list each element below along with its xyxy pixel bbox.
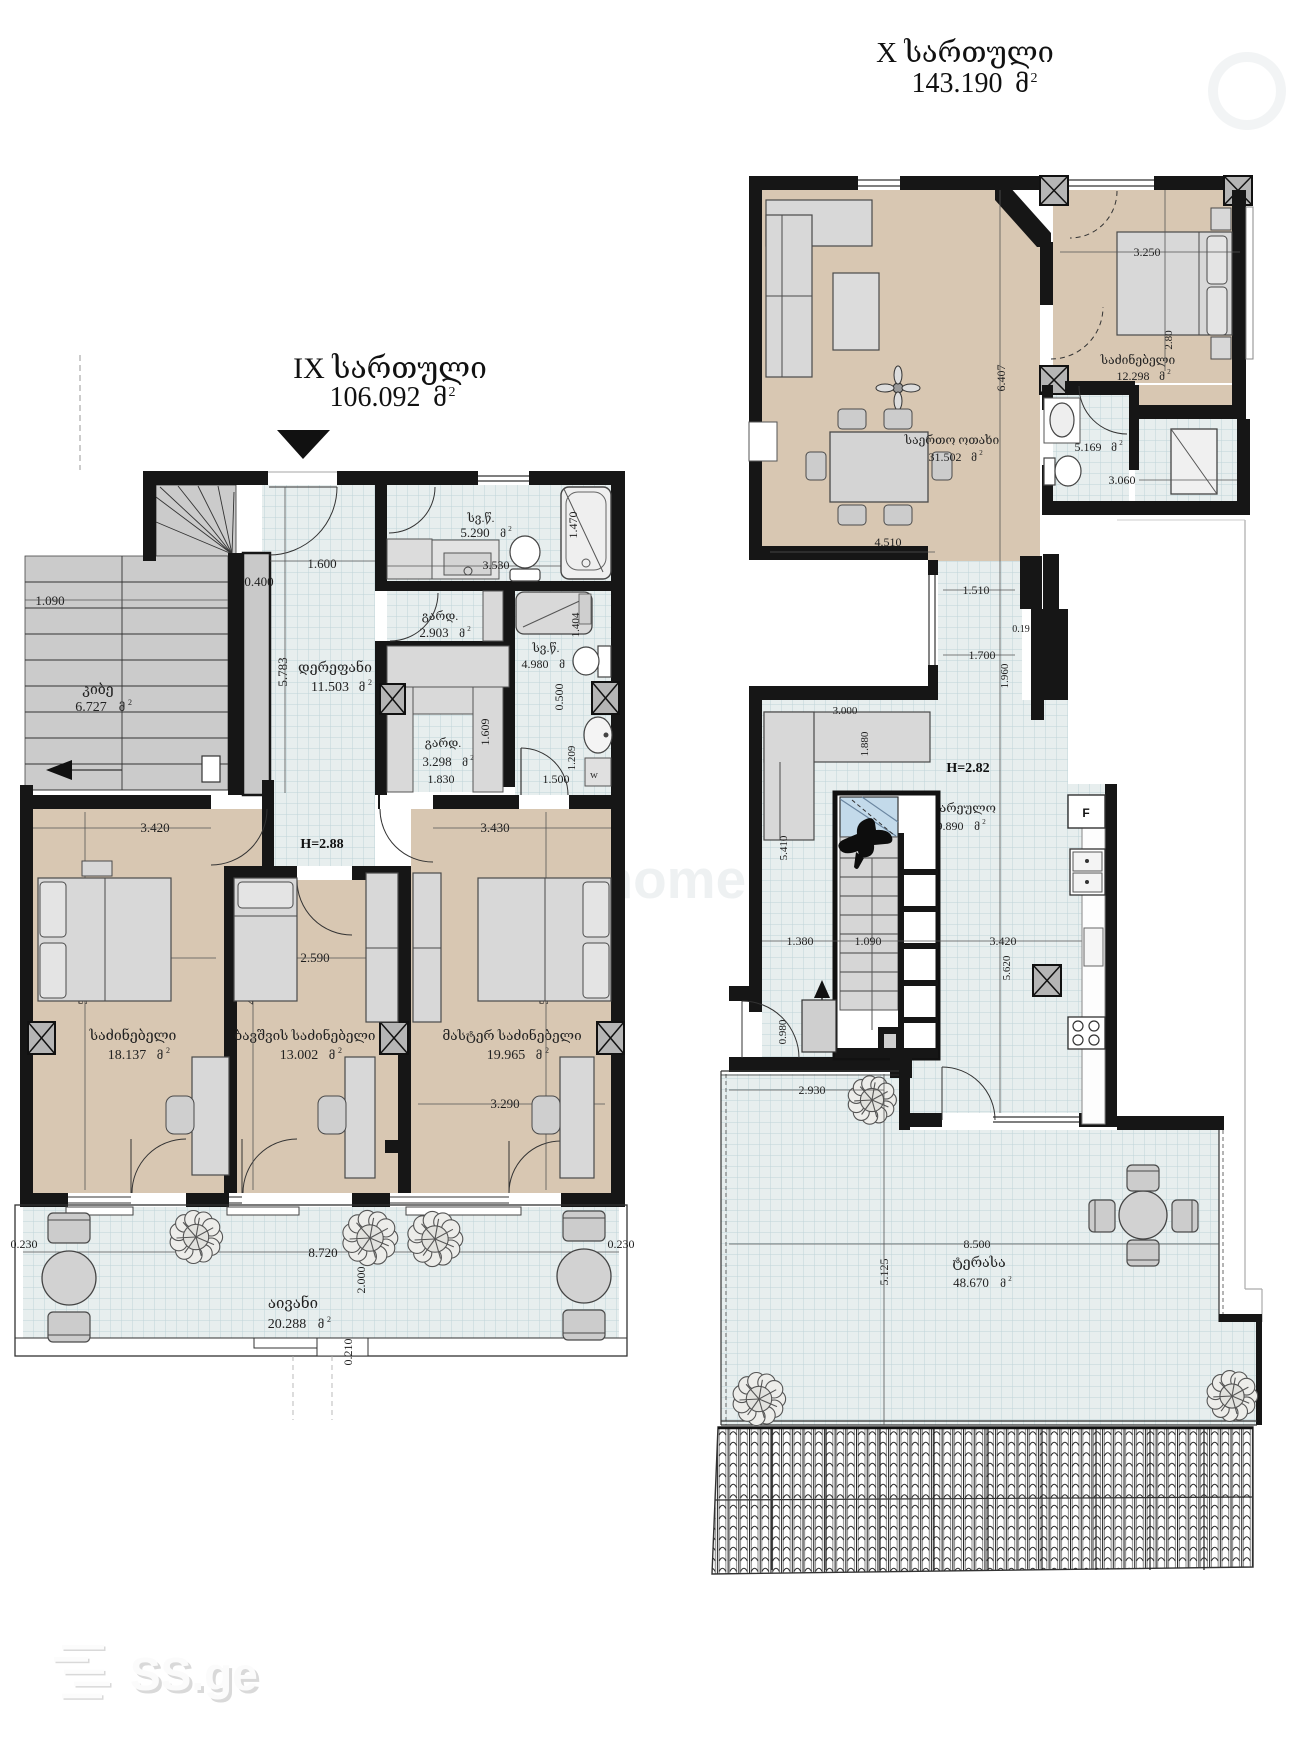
svg-text:1.960: 1.960: [999, 663, 1011, 688]
svg-text:2: 2: [979, 449, 983, 457]
svg-text:მასტერ საძინებელი: მასტერ საძინებელი: [442, 1028, 581, 1043]
svg-text:მ: მ: [462, 758, 468, 769]
svg-text:20.288: 20.288: [268, 1317, 307, 1332]
svg-text:48.670: 48.670: [953, 1275, 989, 1290]
svg-text:ბავშვის საძინებელი: ბავშვის საძინებელი: [235, 1028, 376, 1043]
svg-text:5.290: 5.290: [460, 525, 489, 540]
svg-text:საძინებელი: საძინებელი: [1100, 352, 1176, 367]
svg-text:მ: მ: [329, 1050, 335, 1062]
svg-text:2: 2: [1031, 71, 1038, 86]
svg-text:აივანი: აივანი: [268, 1294, 318, 1312]
svg-text:F: F: [1082, 806, 1089, 820]
svg-text:SS.ge: SS.ge: [130, 1648, 258, 1700]
svg-text:2: 2: [128, 698, 132, 707]
svg-text:0.980: 0.980: [777, 1019, 789, 1044]
svg-text:H=2.82: H=2.82: [946, 761, 989, 776]
svg-text:მ: მ: [157, 1050, 163, 1062]
svg-text:1.404: 1.404: [570, 612, 582, 637]
svg-text:H=2.88: H=2.88: [300, 837, 343, 852]
svg-text:2: 2: [1167, 368, 1171, 376]
svg-text:3.530: 3.530: [483, 558, 510, 572]
svg-text:1.609: 1.609: [478, 719, 492, 746]
svg-text:2: 2: [338, 1046, 342, 1055]
svg-text:5.783: 5.783: [275, 657, 290, 686]
svg-text:3.290: 3.290: [490, 1096, 519, 1111]
svg-text:18.137: 18.137: [108, 1048, 147, 1063]
svg-text:1.600: 1.600: [307, 556, 336, 571]
svg-text:2: 2: [166, 1046, 170, 1055]
svg-text:2: 2: [982, 818, 986, 826]
svg-text:მ: მ: [359, 682, 365, 694]
svg-text:მ: მ: [1111, 443, 1117, 454]
svg-text:მ: მ: [433, 386, 447, 412]
svg-text:მ: მ: [500, 529, 506, 540]
svg-text:2: 2: [327, 1315, 331, 1324]
svg-text:8.720: 8.720: [308, 1245, 337, 1260]
svg-text:6.727: 6.727: [75, 700, 107, 715]
svg-text:მ: მ: [971, 453, 977, 464]
svg-text:1.880: 1.880: [859, 731, 871, 756]
svg-text:1.209: 1.209: [566, 745, 578, 770]
svg-text:მ: მ: [1159, 372, 1165, 383]
svg-text:5.169: 5.169: [1075, 440, 1102, 454]
svg-text:2: 2: [368, 678, 372, 687]
svg-text:მ: მ: [318, 1319, 324, 1331]
svg-text:5.620: 5.620: [1001, 955, 1013, 980]
svg-text:გარდ.: გარდ.: [422, 609, 458, 623]
svg-text:4.510: 4.510: [875, 535, 902, 549]
svg-text:1.090: 1.090: [35, 593, 64, 608]
svg-text:0.500: 0.500: [552, 684, 566, 711]
svg-text:გარდ.: გარდ.: [425, 736, 461, 750]
svg-text:3.298: 3.298: [422, 754, 451, 769]
svg-text:2: 2: [508, 525, 512, 533]
svg-text:1.470: 1.470: [566, 512, 580, 539]
svg-text:12.298: 12.298: [1117, 369, 1150, 383]
svg-text:დერეფანი: დერეფანი: [298, 658, 372, 676]
svg-text:2: 2: [1008, 1275, 1012, 1283]
svg-text:0.400: 0.400: [244, 574, 273, 589]
svg-text:X სართული: X სართული: [876, 37, 1054, 69]
svg-text:2: 2: [467, 625, 471, 633]
svg-text:0.210: 0.210: [341, 1339, 355, 1366]
svg-text:მ: მ: [1015, 72, 1029, 98]
svg-text:0.230: 0.230: [608, 1237, 635, 1251]
svg-text:5.410: 5.410: [778, 835, 790, 860]
svg-text:სვ.წ.: სვ.წ.: [467, 511, 495, 525]
svg-text:2: 2: [1119, 439, 1123, 447]
svg-text:მ: მ: [1000, 1279, 1006, 1290]
svg-text:4.980: 4.980: [522, 657, 549, 671]
svg-text:3.060: 3.060: [1109, 473, 1136, 487]
svg-text:საძინებელი: საძინებელი: [89, 1026, 177, 1044]
svg-text:2.000: 2.000: [354, 1267, 368, 1294]
svg-text:0.19: 0.19: [1012, 624, 1030, 635]
svg-text:2.903: 2.903: [419, 625, 448, 640]
svg-text:143.190: 143.190: [912, 68, 1003, 99]
svg-text:106.092: 106.092: [330, 382, 421, 413]
svg-text:2: 2: [470, 754, 474, 762]
svg-text:6.407: 6.407: [994, 365, 1008, 392]
svg-text:2: 2: [449, 385, 456, 400]
svg-text:3.000: 3.000: [833, 705, 858, 717]
svg-text:მ: მ: [559, 660, 565, 671]
svg-text:19.965: 19.965: [487, 1048, 526, 1063]
svg-text:3.420: 3.420: [140, 820, 169, 835]
svg-text:31.502: 31.502: [929, 450, 962, 464]
svg-text:ტერასა: ტერასა: [952, 1254, 1006, 1271]
svg-text:0.230: 0.230: [11, 1237, 38, 1251]
svg-text:1.830: 1.830: [428, 772, 455, 786]
svg-text:2.590: 2.590: [300, 950, 329, 965]
svg-text:სვ.წ.: სვ.წ.: [532, 641, 560, 655]
svg-text:13.002: 13.002: [280, 1048, 319, 1063]
svg-text:მ: მ: [459, 629, 465, 640]
svg-text:1.500: 1.500: [543, 772, 570, 786]
svg-text:მ: მ: [119, 702, 125, 714]
svg-text:IX სართული: IX სართული: [293, 352, 487, 385]
svg-text:მ: მ: [974, 822, 980, 833]
svg-text:11.503: 11.503: [311, 680, 349, 695]
svg-text:3.430: 3.430: [480, 820, 509, 835]
svg-text:კიბე: კიბე: [82, 681, 113, 698]
svg-text:w: w: [590, 769, 598, 781]
svg-text:მ: მ: [536, 1050, 542, 1062]
svg-text:საერთო ოთახი: საერთო ოთახი: [904, 433, 1000, 447]
